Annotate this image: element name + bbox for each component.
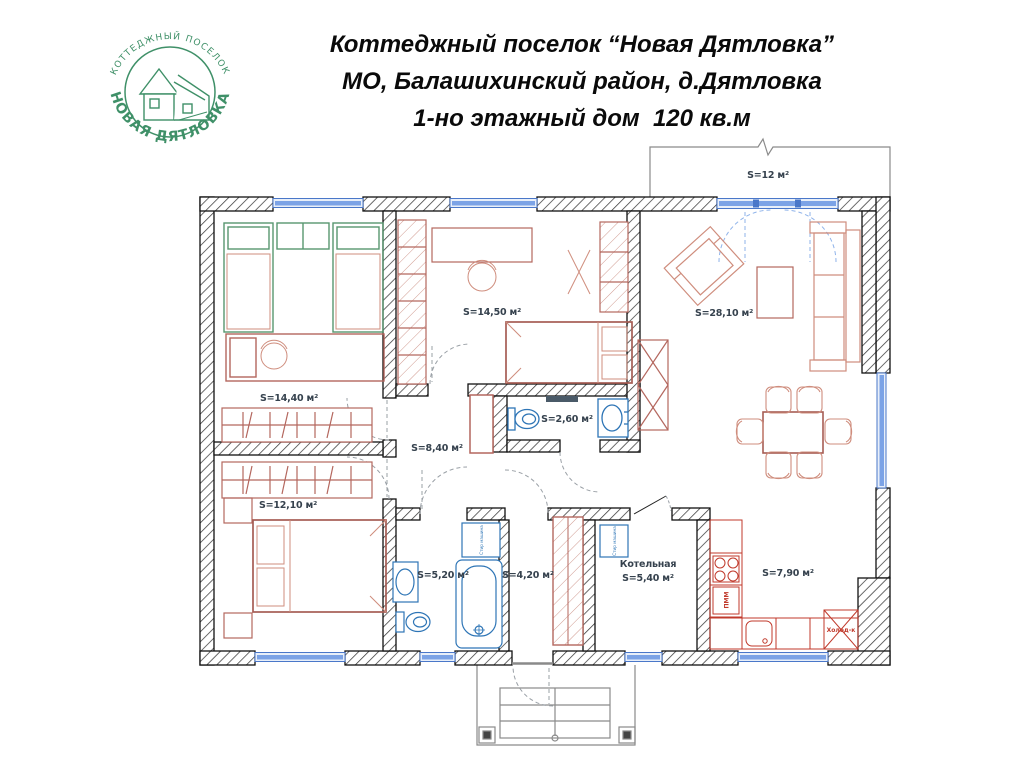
- room-name-boiler: Котельная: [620, 559, 677, 570]
- fridge-label: Холод-к: [827, 627, 856, 634]
- room-label-boiler: S=5,40 м²: [622, 573, 674, 584]
- bedroom-2-furniture: [222, 462, 386, 638]
- hallway-cabinet: [470, 395, 493, 453]
- terrace-door-swings: [719, 210, 836, 262]
- terrace-outline: [650, 139, 890, 197]
- floor-plan-page: КОТТЕДЖНЫЙ ПОСЕЛОК НОВАЯ ДЯТЛОВКА Коттед…: [0, 0, 1024, 768]
- entrance-porch: [477, 665, 635, 745]
- children-bedroom-furniture: [222, 223, 384, 442]
- boiler-washer-label: Стир машина: [612, 526, 617, 556]
- washer-label: Стир машина: [479, 525, 484, 555]
- floor-plan-drawing: Стир машина Стир машина: [0, 0, 1024, 768]
- room-label-wc: S=2,60 м²: [541, 414, 593, 425]
- living-room-furniture: [638, 222, 860, 479]
- room-label-terrace: S=12 м²: [747, 170, 789, 181]
- boiler-door: [634, 496, 671, 514]
- room-label-hallway: S=8,40 м²: [411, 443, 463, 454]
- room-labels: S=14,40 м² S=12,10 м² S=14,50 м² S=2,60 …: [259, 170, 814, 584]
- boiler-room-fixtures: Стир машина: [600, 525, 628, 557]
- room-label-bedroom-2: S=12,10 м²: [259, 500, 317, 511]
- room-label-bathroom: S=5,20 м²: [417, 570, 469, 581]
- bedroom-3-furniture: [398, 220, 632, 384]
- room-label-bedroom-3: S=14,50 м²: [463, 307, 521, 318]
- room-label-children-bedroom: S=14,40 м²: [260, 393, 318, 404]
- room-label-living-room: S=28,10 м²: [695, 308, 753, 319]
- dishwasher-label: ПММ: [724, 591, 731, 608]
- room-label-kitchen: S=7,90 м²: [762, 568, 814, 579]
- entry-hall-wardrobe: [553, 517, 583, 645]
- bathroom-fixtures: Стир машина: [393, 523, 502, 648]
- room-label-entry-hall: S=4,20 м²: [502, 570, 554, 581]
